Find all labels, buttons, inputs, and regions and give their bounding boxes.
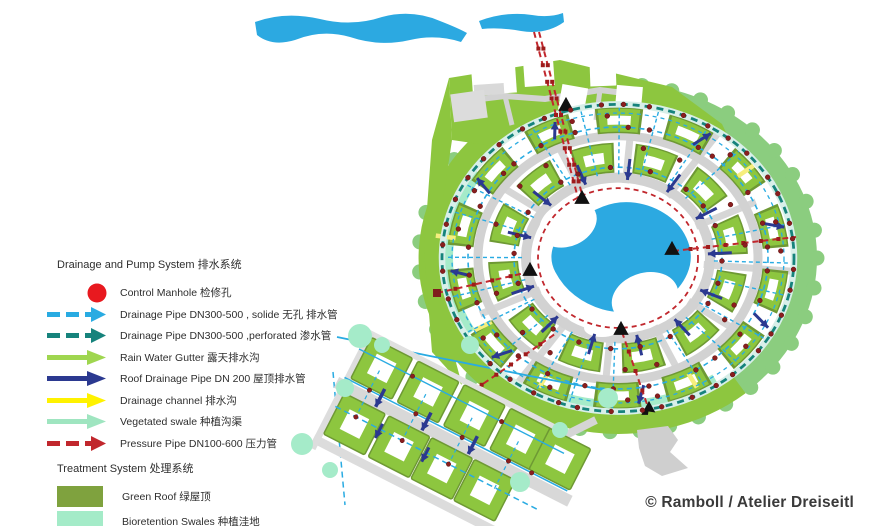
dashed-arrow-icon: [45, 435, 107, 452]
control-manhole-icon: [45, 283, 107, 303]
legend-treatment-items: Green Roof 绿屋顶Bioretention Swales 种植洼地: [45, 484, 390, 526]
legend-item-label: Pressure Pipe DN100-600 压力管: [120, 436, 277, 451]
legend-item-label: Control Manhole 检修孔: [120, 285, 231, 300]
legend-item: Vegetated swale 种植沟渠: [45, 411, 390, 433]
solid-arrow-icon: [45, 370, 107, 387]
legend-item: Drainage Pipe DN300-500 , solide 无孔 排水管: [45, 304, 390, 326]
legend-item-label: Bioretention Swales 种植洼地: [122, 514, 260, 526]
drainage-masterplan-page: Drainage and Pump System 排水系统 Control Ma…: [0, 0, 882, 526]
legend-item-label: Drainage Pipe DN300-500 , solide 无孔 排水管: [120, 307, 338, 322]
credit: © Ramboll / Atelier Dreiseitl: [645, 494, 854, 512]
legend-treatment-header: Treatment System 处理系统: [57, 460, 390, 476]
legend-item: Pressure Pipe DN100-600 压力管: [45, 433, 390, 455]
solid-arrow-icon: [45, 392, 107, 409]
legend-item: Roof Drainage Pipe DN 200 屋顶排水管: [45, 368, 390, 390]
legend-item: Control Manhole 检修孔: [45, 282, 390, 304]
legend-item-label: Green Roof 绿屋顶: [122, 489, 211, 504]
legend-item-label: Drainage Pipe DN300-500 ,perforated 渗水管: [120, 328, 331, 343]
legend-item-label: Roof Drainage Pipe DN 200 屋顶排水管: [120, 371, 306, 386]
legend-item: Rain Water Gutter 露天排水沟: [45, 347, 390, 369]
legend-item-label: Rain Water Gutter 露天排水沟: [120, 350, 260, 365]
swatch-icon: [57, 486, 103, 507]
dashed-arrow-icon: [45, 306, 107, 323]
legend-drainage-header: Drainage and Pump System 排水系统: [57, 256, 390, 272]
legend-item-label: Drainage channel 排水沟: [120, 393, 237, 408]
swatch-icon: [57, 511, 103, 526]
legend: Drainage and Pump System 排水系统 Control Ma…: [45, 256, 390, 526]
legend-item-label: Vegetated swale 种植沟渠: [120, 414, 242, 429]
legend-item: Drainage Pipe DN300-500 ,perforated 渗水管: [45, 325, 390, 347]
legend-item: Drainage channel 排水沟: [45, 390, 390, 412]
solid-arrow-icon: [45, 413, 107, 430]
legend-items: Control Manhole 检修孔Drainage Pipe DN300-5…: [45, 282, 390, 454]
dashed-arrow-icon: [45, 327, 107, 344]
river: [255, 13, 564, 43]
legend-swatch-item: Green Roof 绿屋顶: [45, 484, 390, 509]
legend-swatch-item: Bioretention Swales 种植洼地: [45, 509, 390, 526]
solid-arrow-icon: [45, 349, 107, 366]
